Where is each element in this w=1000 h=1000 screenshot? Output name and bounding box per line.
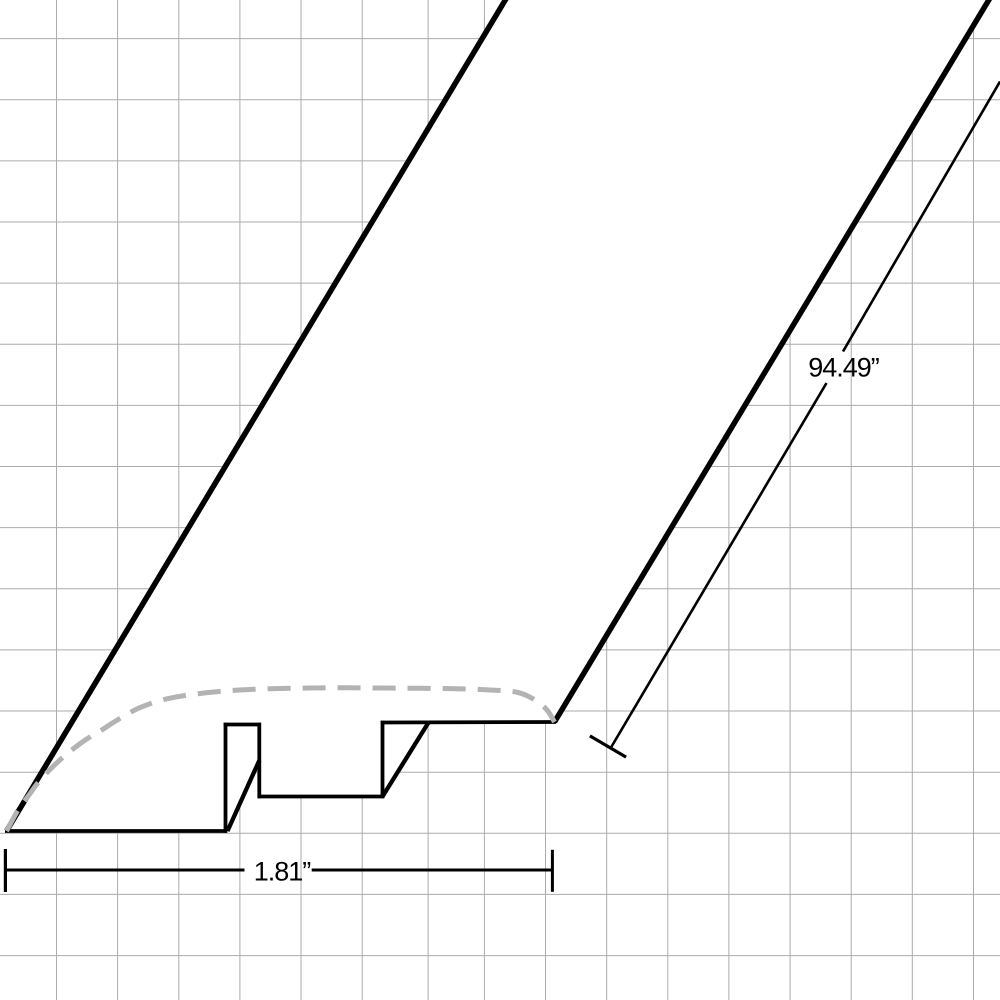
svg-text:94.49”: 94.49” (808, 352, 879, 382)
svg-text:1.81”: 1.81” (254, 857, 311, 887)
